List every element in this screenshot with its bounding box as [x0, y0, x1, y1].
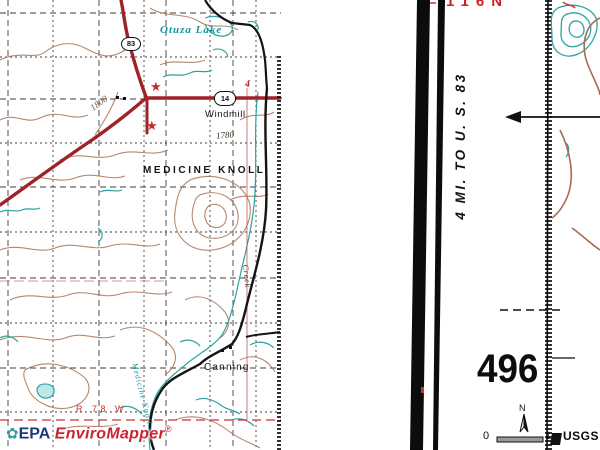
north-arrow-label: N [519, 403, 526, 413]
epa-agency-text: EPA [19, 425, 51, 442]
township-label-116n: 116N [446, 0, 509, 10]
facility-star-marker-2[interactable]: ★ [146, 119, 158, 132]
facility-star-marker-1[interactable]: ★ [150, 80, 162, 93]
building-markers [116, 96, 232, 352]
medicine-knoll-label: MEDICINE KNOLL [143, 165, 266, 176]
map-sheet-number: 496 [477, 347, 538, 392]
registered-mark: ® [165, 424, 172, 434]
epa-flower-icon: ✿ [6, 425, 19, 442]
windmill-label: Windmill [205, 109, 246, 120]
highway-double-band [410, 0, 445, 450]
red-numeral-label: 4 [245, 79, 250, 90]
route-shield-83: 83 [121, 37, 141, 51]
range-line-label: R 78 W [76, 404, 127, 414]
route-shield-14: 14 [214, 91, 236, 106]
scale-bar [497, 437, 543, 442]
epa-enviromapper-logo: ✿EPA EnviroMapper® [6, 424, 172, 443]
lake-label: Otuza Lake [160, 24, 222, 36]
black-roads [150, 0, 280, 450]
usgs-logo-icon [550, 433, 562, 445]
usgs-logo-text: USGS [563, 429, 599, 443]
right-strip-water [551, 5, 597, 157]
enviromapper-product-text: EnviroMapper [55, 425, 165, 442]
west-arrowhead [505, 111, 521, 123]
distance-note-rotated: 4 MI. TO U. S. 83 [453, 26, 473, 266]
quad-edge-ticks [277, 55, 281, 450]
boundary-spine [547, 0, 548, 450]
north-arrow-icon [520, 414, 528, 432]
envirompapper-map-view[interactable]: Otuza Lake Windmill MEDICINE KNOLL Canni… [0, 0, 600, 450]
scale-one-label: 1 [545, 430, 551, 442]
scale-zero-label: 0 [483, 430, 489, 442]
red-tick-on-band [421, 387, 424, 393]
canning-town-label: Canning [204, 362, 250, 373]
contour-elevation-1780: 1780 [216, 129, 235, 141]
